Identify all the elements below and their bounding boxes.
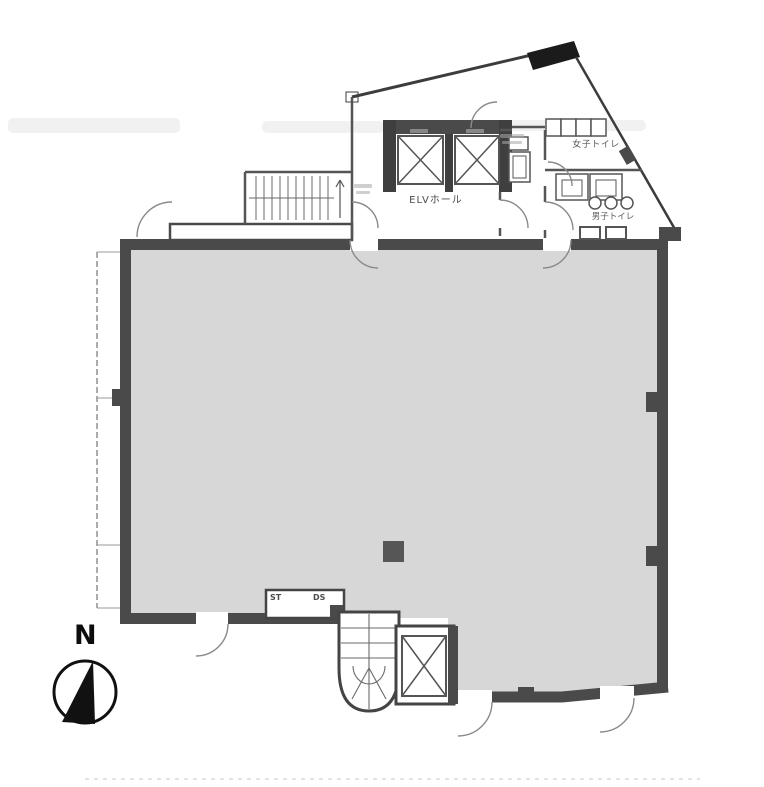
st-shaft-label: ST <box>270 594 281 602</box>
elevator-shafts <box>383 120 512 192</box>
wash-basin <box>606 227 626 239</box>
apex-black-block <box>527 41 580 70</box>
service-elevator <box>396 626 458 704</box>
spiral-staircase <box>339 612 399 711</box>
floor-plan-drawing <box>0 0 764 787</box>
illegible-small-label <box>500 134 524 138</box>
elv-hall-label: ELVホール <box>390 196 482 206</box>
wash-basin <box>580 227 600 239</box>
compass-rose <box>54 661 116 724</box>
urinal <box>589 197 601 209</box>
illegible-small-label <box>502 141 522 144</box>
ds-shaft-label: DS <box>313 594 325 602</box>
compass-needle-icon <box>62 661 95 724</box>
corner-block <box>659 227 681 241</box>
toilet-stall <box>576 119 591 136</box>
balcony-strip <box>97 252 120 608</box>
urinal <box>621 197 633 209</box>
center-column <box>383 541 404 562</box>
mens-toilet-area <box>556 174 633 239</box>
urinal <box>605 197 617 209</box>
mens-toilet-label: 男子トイレ <box>580 213 646 222</box>
toilet-stall <box>591 119 606 136</box>
illegible-small-label <box>356 191 370 194</box>
illegible-small-label <box>354 184 372 188</box>
toilet-stall <box>561 119 576 136</box>
womens-toilet-label: 女子トイレ <box>552 141 640 150</box>
stairwell-north <box>245 97 352 238</box>
compass-north-label: N <box>74 622 97 649</box>
toilet-stall <box>546 119 561 136</box>
floor-plan-canvas: ELVホール 女子トイレ 男子トイレ ST DS N <box>0 0 764 787</box>
north-ledge <box>170 224 352 240</box>
